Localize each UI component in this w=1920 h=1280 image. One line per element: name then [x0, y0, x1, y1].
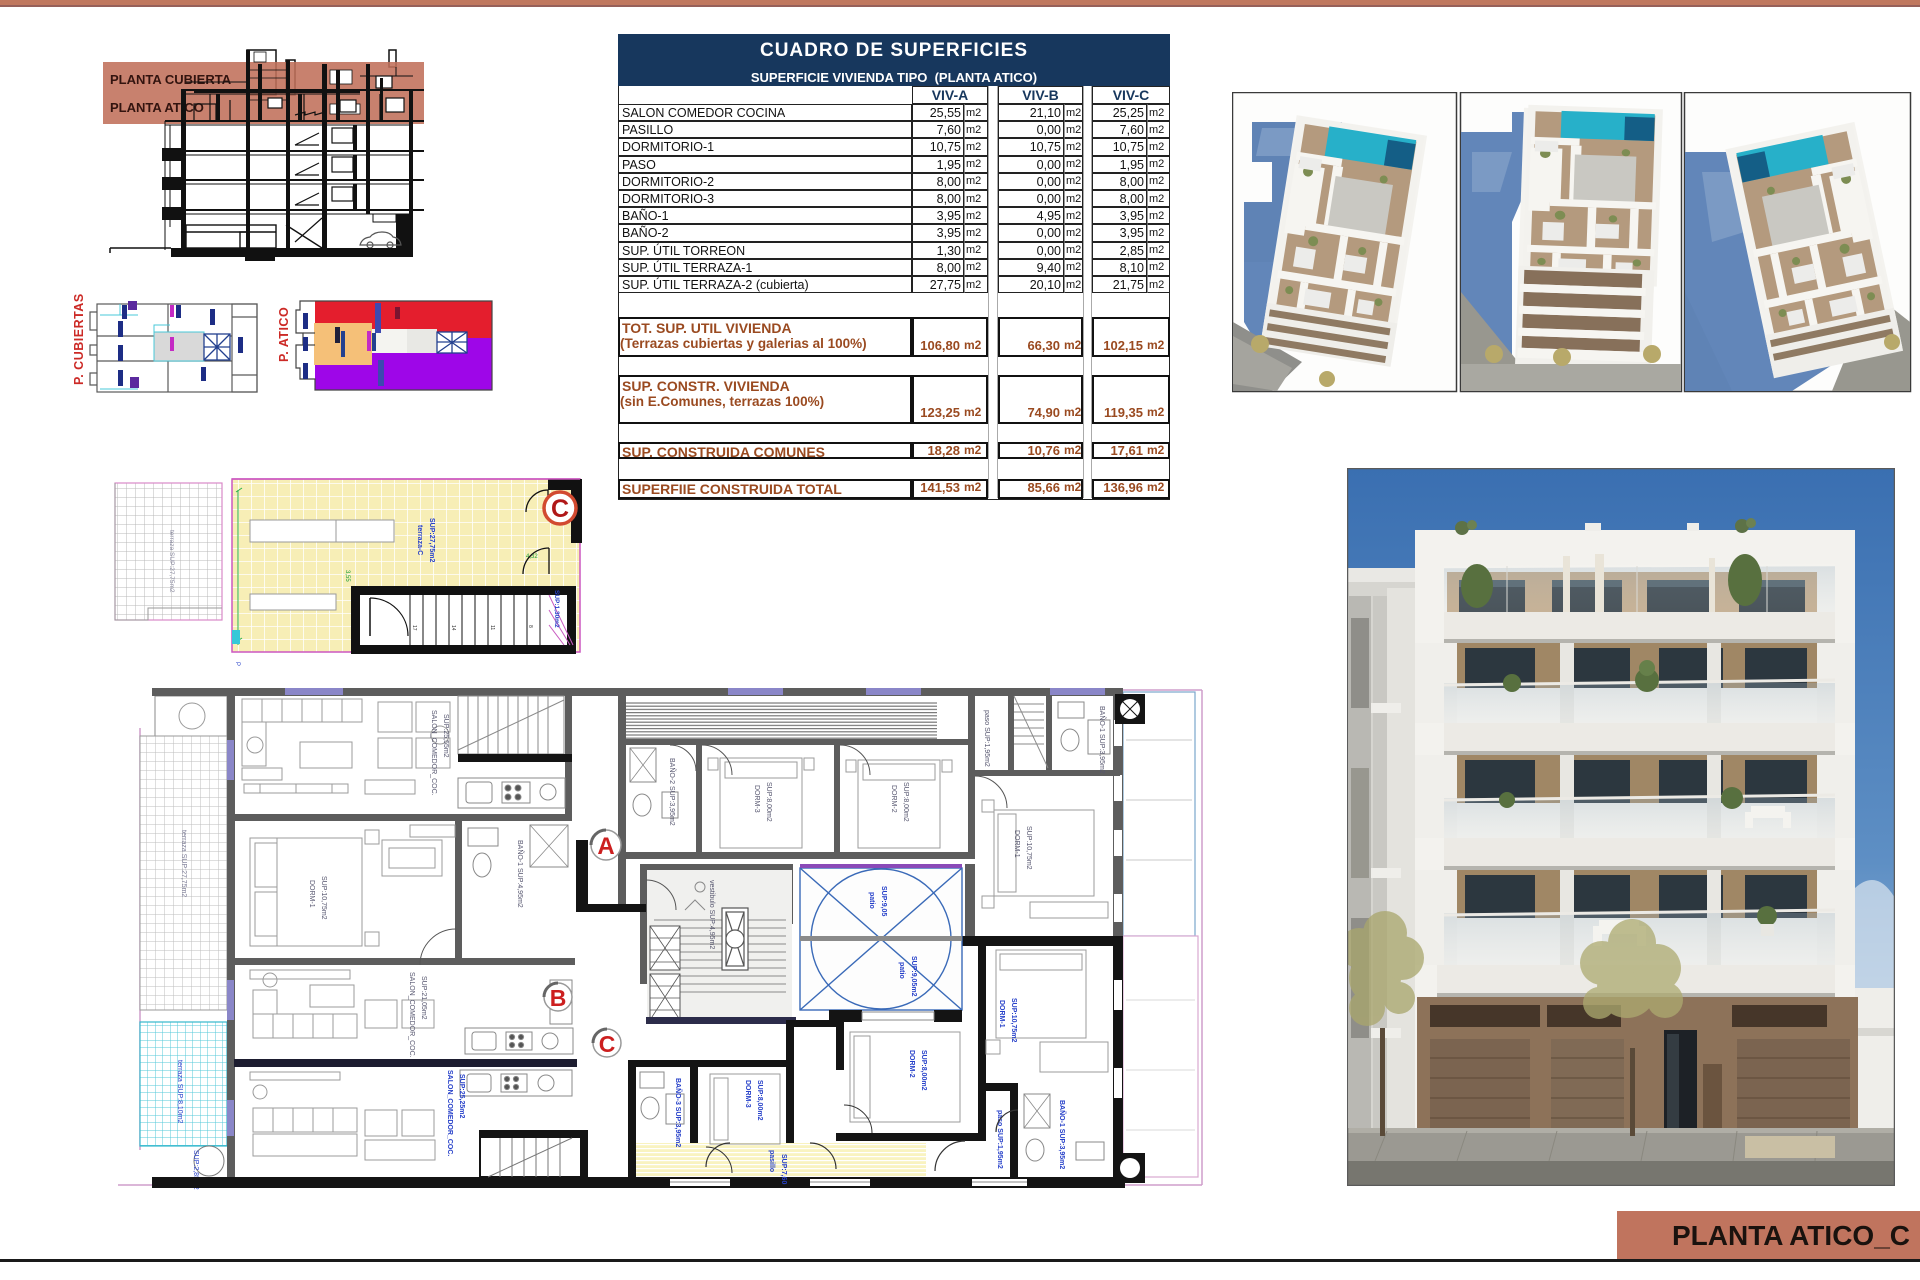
- svg-text:BAÑO-1 SUP:3,95m2: BAÑO-1 SUP:3,95m2: [1098, 706, 1107, 774]
- svg-text:patio: patio: [898, 962, 905, 979]
- svg-text:P. CUBIERTAS: P. CUBIERTAS: [72, 293, 86, 385]
- svg-text:SUP:27,75m2: SUP:27,75m2: [428, 518, 435, 562]
- svg-text:SUP:1,30m2: SUP:1,30m2: [553, 590, 560, 628]
- svg-text:DORM-3: DORM-3: [744, 1080, 751, 1108]
- svg-text:3,55: 3,55: [344, 570, 350, 582]
- svg-text:SUP:25,25m2: SUP:25,25m2: [458, 1074, 465, 1118]
- svg-text:SUP:8,00m2: SUP:8,00m2: [765, 782, 772, 822]
- svg-text:SUP:10,75m2: SUP:10,75m2: [1025, 826, 1032, 870]
- svg-text:17: 17: [411, 625, 417, 631]
- svg-text:BAÑO-3 SUP:3,95m2: BAÑO-3 SUP:3,95m2: [674, 1078, 683, 1147]
- svg-text:BAÑO-1 SUP:3,95m2: BAÑO-1 SUP:3,95m2: [1058, 1100, 1067, 1169]
- svg-text:paso SUP:1,95m2: paso SUP:1,95m2: [983, 710, 990, 767]
- svg-text:SALON_COMEDOR_COC.: SALON_COMEDOR_COC.: [408, 972, 415, 1058]
- svg-text:SALON_COMEDOR_COC.: SALON_COMEDOR_COC.: [430, 710, 437, 796]
- svg-text:terraza SUP:8,10m2: terraza SUP:8,10m2: [176, 1060, 183, 1124]
- svg-text:SUP:25,55m2: SUP:25,55m2: [442, 714, 449, 758]
- svg-text:SUP:10,75m2: SUP:10,75m2: [1010, 998, 1017, 1042]
- svg-text:SUP:8,00m2: SUP:8,00m2: [920, 1050, 927, 1091]
- svg-text:SALON_COMEDOR_COC.: SALON_COMEDOR_COC.: [446, 1070, 453, 1156]
- svg-text:P. ATICO: P. ATICO: [277, 307, 291, 362]
- svg-text:A: A: [597, 833, 614, 860]
- svg-text:SUP:8,00m2: SUP:8,00m2: [902, 782, 909, 822]
- svg-text:SUP:9,05: SUP:9,05: [880, 886, 887, 916]
- svg-text:14: 14: [450, 625, 456, 631]
- svg-text:C: C: [599, 1031, 616, 1057]
- svg-text:DORM-1: DORM-1: [998, 1000, 1005, 1028]
- svg-text:terraza SUP:27,75m2: terraza SUP:27,75m2: [168, 530, 175, 593]
- svg-text:SUP:10,75m2: SUP:10,75m2: [320, 876, 327, 920]
- svg-text:SUP:7,60: SUP:7,60: [780, 1154, 787, 1184]
- svg-text:PLANTA ATICO: PLANTA ATICO: [110, 100, 204, 115]
- svg-text:8: 8: [527, 625, 533, 628]
- svg-text:BAÑO-1 SUP:4,95m2: BAÑO-1 SUP:4,95m2: [516, 840, 525, 908]
- svg-text:SUP:9,05m2: SUP:9,05m2: [910, 956, 917, 997]
- svg-text:B: B: [550, 985, 567, 1011]
- svg-text:terraza-C: terraza-C: [416, 525, 423, 555]
- svg-text:vestibulo SUP:4,95m2: vestibulo SUP:4,95m2: [708, 880, 715, 949]
- svg-text:PLANTA CUBIERTA: PLANTA CUBIERTA: [110, 72, 232, 87]
- svg-text:DORM-1: DORM-1: [308, 880, 315, 908]
- svg-text:DORM-1: DORM-1: [1013, 830, 1020, 858]
- svg-text:patio: patio: [868, 892, 875, 909]
- svg-text:SUP:21,05m2: SUP:21,05m2: [420, 976, 427, 1020]
- svg-text:terraza SUP:27,75m2: terraza SUP:27,75m2: [180, 830, 187, 897]
- svg-text:DORM-2: DORM-2: [890, 785, 897, 813]
- svg-text:DORM-2: DORM-2: [908, 1050, 915, 1078]
- svg-text:SUP:8,00m2: SUP:8,00m2: [756, 1080, 763, 1121]
- svg-text:C: C: [551, 495, 569, 523]
- svg-text:paso SUP:1,95m2: paso SUP:1,95m2: [996, 1110, 1003, 1169]
- svg-text:pasillo: pasillo: [768, 1150, 775, 1172]
- svg-text:BAÑO-2 SUP:3,95m2: BAÑO-2 SUP:3,95m2: [668, 758, 677, 826]
- svg-text:11: 11: [489, 625, 495, 630]
- svg-text:DORM-3: DORM-3: [753, 785, 760, 813]
- svg-text:P: P: [234, 662, 240, 666]
